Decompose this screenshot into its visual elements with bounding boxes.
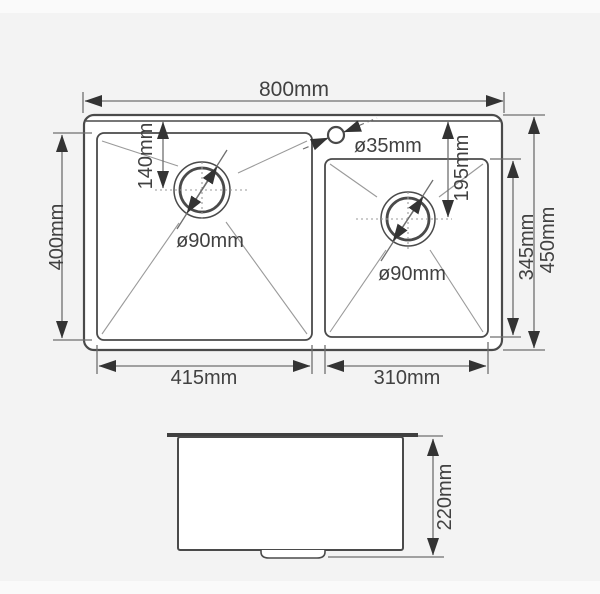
dim-right-drain-offset-label: 195mm (451, 135, 473, 202)
bottom-band (0, 581, 600, 594)
top-band (0, 0, 600, 13)
dim-left-bowl-width-label: 415mm (171, 367, 238, 389)
dim-bowl-height-label: 220mm (434, 464, 456, 531)
dim-faucet-hole-label: ø35mm (354, 135, 422, 157)
dim-right-bowl-width-label: 310mm (374, 367, 441, 389)
dim-right-bowl-depth-label: 345mm (516, 214, 538, 281)
drawing-canvas: ø35mm 800mm 400mm 140mm 195mm 345mm (0, 0, 600, 594)
dim-left-drain-diameter-label: ø90mm (176, 230, 244, 252)
dim-left-drain-offset-label: 140mm (135, 123, 157, 190)
dim-left-bowl-depth-label: 400mm (46, 204, 68, 271)
dim-right-drain-diameter-label: ø90mm (378, 263, 446, 285)
dim-overall-width-label: 800mm (259, 78, 329, 101)
side-view-body (178, 437, 403, 550)
dim-overall-depth-label: 450mm (537, 207, 559, 274)
top-view: ø35mm 800mm 400mm 140mm 195mm 345mm (46, 78, 559, 389)
side-view-drain-bump (261, 550, 325, 558)
sink-dimension-drawing: ø35mm 800mm 400mm 140mm 195mm 345mm (0, 0, 600, 594)
